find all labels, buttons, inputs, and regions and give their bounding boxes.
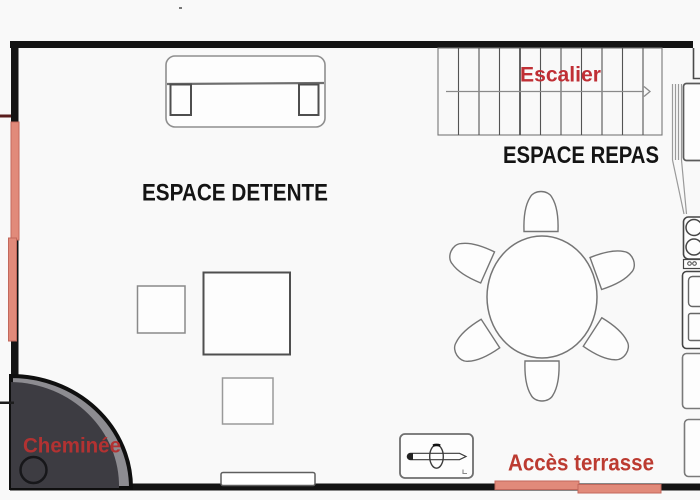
svg-text:Accès terrasse: Accès terrasse — [508, 450, 654, 476]
svg-text:ESPACE DETENTE: ESPACE DETENTE — [142, 180, 328, 207]
svg-text:Cheminée: Cheminée — [23, 435, 121, 458]
svg-text:ESPACE REPAS: ESPACE REPAS — [503, 142, 659, 169]
svg-text:Escalier: Escalier — [520, 64, 601, 87]
